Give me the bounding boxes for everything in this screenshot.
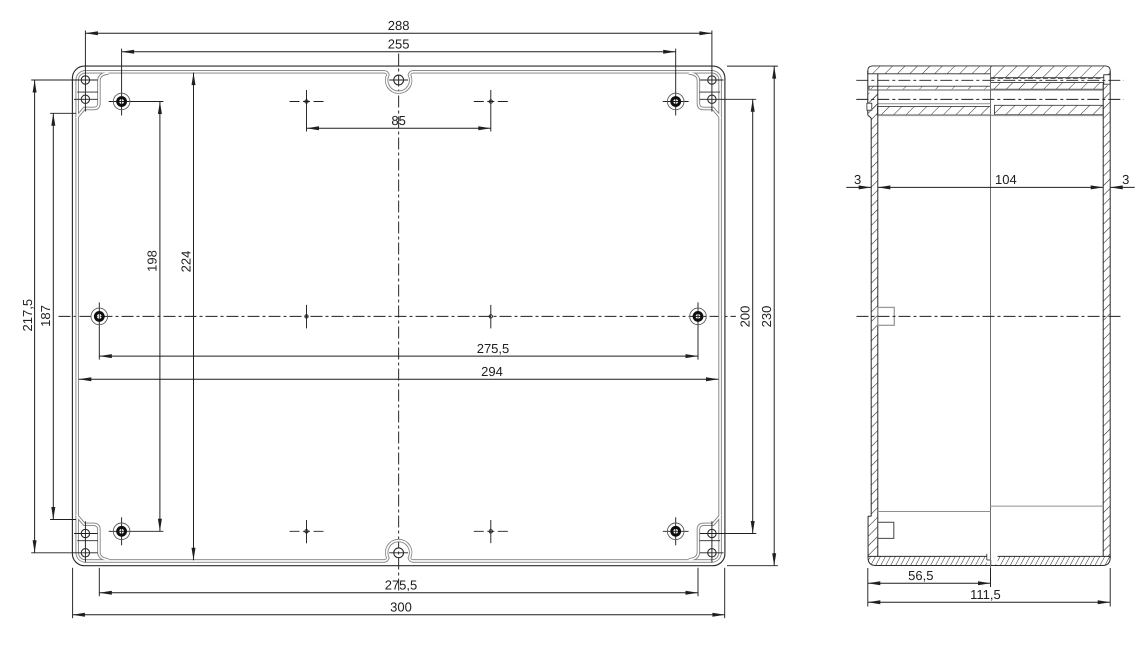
svg-text:294: 294: [481, 364, 503, 379]
svg-text:3: 3: [854, 172, 861, 187]
svg-text:275,5: 275,5: [385, 578, 418, 593]
svg-text:217,5: 217,5: [20, 299, 35, 332]
svg-text:275,5: 275,5: [477, 341, 510, 356]
svg-text:200: 200: [738, 306, 753, 328]
svg-text:111,5: 111,5: [970, 587, 1001, 602]
svg-text:85: 85: [391, 113, 405, 128]
svg-text:300: 300: [390, 600, 412, 615]
svg-text:187: 187: [38, 305, 53, 327]
svg-text:198: 198: [145, 250, 160, 272]
svg-text:255: 255: [388, 37, 410, 52]
svg-text:288: 288: [388, 18, 410, 33]
svg-text:104: 104: [995, 172, 1017, 187]
svg-text:3: 3: [1122, 172, 1129, 187]
svg-text:230: 230: [759, 306, 774, 328]
svg-text:224: 224: [178, 251, 193, 273]
svg-text:56,5: 56,5: [908, 568, 933, 583]
